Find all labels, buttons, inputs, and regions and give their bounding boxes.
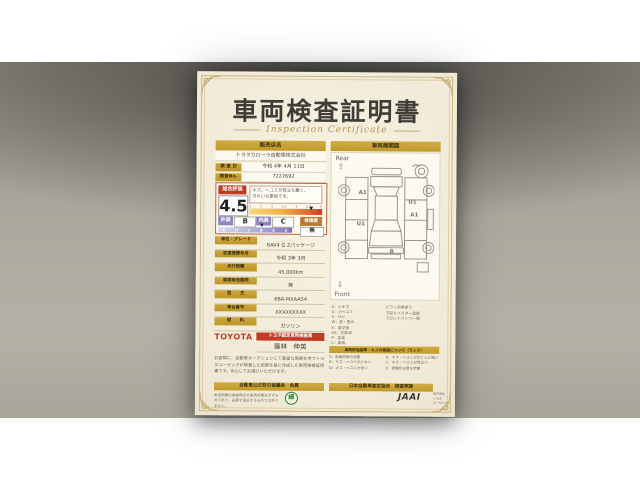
overall-rating-box: 総合評価 4.5 キズ、ヘコミが目立ち難く、 きれいな車両です。 1 2 3 3… (215, 182, 327, 235)
damage-marker: U1 (357, 221, 366, 227)
footer-note: 本証明書は検査時点の車両状態を示すものであり、品質を保証するものではありません。 (214, 393, 280, 410)
grade-tick: D (235, 228, 238, 232)
certified-inspector-badge: トヨタ認定車両検査員 (256, 333, 324, 341)
spec-label: 車検有効期限 (215, 277, 257, 285)
spec-value: 令和 3年 3月 (257, 255, 325, 262)
appraisal-institute-bar: 日本自動車査定協会 検査実施 (329, 383, 433, 392)
front-label: Front (335, 291, 350, 298)
fair-trade-council-bar: 自動車公正取引協議会 会員 (214, 382, 324, 391)
exterior-label: 外装 (218, 216, 233, 225)
subtitle-ornament (393, 130, 419, 131)
certificate-subtitle: Inspection Certificate (197, 124, 457, 136)
grade-tick: A (272, 228, 275, 232)
certificate-document: 車両検査証明書 Inspection Certificate 販売店名 トヨタカ… (195, 71, 457, 417)
spec-value: RAV4 G Zパッケージ (257, 241, 325, 248)
dealer-header: 販売店名 (216, 140, 326, 151)
spec-label: 走行距離 (215, 263, 257, 271)
subtitle-text: Inspection Certificate (266, 125, 387, 136)
jaai-logo: JAAI (398, 393, 432, 403)
grade-scale-bar: E D C B A S (218, 227, 292, 233)
front-arrow-icon: ⇩ (337, 281, 344, 289)
overall-rating-badge: 総合評価 (218, 185, 246, 194)
spec-value: ガソリン (256, 322, 324, 329)
toyota-logo: TOYOTA (214, 332, 254, 341)
spec-value: 無 (257, 282, 325, 289)
inspection-date-label: 検 査 日 (216, 163, 242, 171)
diagram-header: 車両展開図 (331, 141, 441, 152)
grade-tick: E (223, 228, 225, 232)
inspection-date-value: 令和 4年 4月 11日 (241, 162, 325, 173)
publisher-line: ユーゼック (433, 401, 451, 406)
criteria-list: S：新車同様の状態 A：キズ・ヘコミがほとんど無い B：キズ・ヘコミが少ない C… (329, 355, 439, 372)
left-column: 販売店名 トヨタカローラ自動車株式会社 検 査 日 令和 4年 4月 11日 検… (214, 140, 326, 391)
spec-label: 型 式 (215, 290, 257, 298)
overall-rating-score: 4.5 (218, 195, 248, 216)
repair-history-label: 修復歴 (300, 217, 322, 226)
grade-tick: C (248, 228, 251, 232)
disclaimer-text: お客様に、自動車オークションにて豊富な実績を持つトヨタユーゼックが検査した結果を… (214, 355, 324, 375)
diagram-legend: A：小キズ U：小ヘコミ S：サビ W：波・歪み X：要交換 XX：交換済 P：… (331, 304, 383, 345)
grade-marker-icon: ▼ (260, 225, 263, 229)
criteria-item: D：キズ・ヘコミが多い (329, 366, 383, 372)
spec-value: XXXXXXXXX (256, 310, 324, 316)
inspection-no-row: 検査No. 7227692 (215, 172, 325, 182)
spec-label: 初度登録年月 (215, 250, 257, 258)
score-marker-icon: ▼ (309, 207, 313, 212)
spec-value: 45,000km (257, 269, 325, 275)
footer-publisher-note: 株式会社 トヨタ ユーゼック (433, 392, 451, 406)
grade-tick: S (285, 228, 287, 232)
note-item: フロントバンパー傷 (385, 316, 439, 322)
inspection-no-value: 7227692 (241, 172, 325, 183)
right-column: 車両展開図 Rear ⇧ (329, 141, 441, 387)
inspection-notes: ピラー交換あり 下回りパスター塗装 フロントバンパー傷 (385, 304, 439, 321)
spec-row-fuel: 燃 料 ガソリン (214, 316, 324, 331)
car-diagram-panel: Rear ⇧ (330, 152, 441, 301)
damage-marker: B (390, 249, 394, 255)
subtitle-ornament (234, 129, 260, 130)
exterior-grade: B (234, 216, 256, 227)
damage-marker: A1 (410, 213, 418, 219)
spec-value: 6BA-MXAA54 (257, 296, 325, 302)
green-emblem-icon: 緑 (285, 392, 298, 405)
interior-label: 内装 (256, 217, 271, 226)
criteria-header: 車両評価基準・キズの程度について（ランク） (329, 346, 439, 354)
car-unfolded-diagram: A1 U1 A1 U1 B (338, 159, 435, 296)
legend-item: C：腐食 (331, 340, 383, 345)
interior-grade: C (272, 217, 294, 228)
inspector-name: 藤林 伸英 (256, 343, 324, 353)
grade-tick: B (260, 228, 263, 232)
certificate-title: 車両検査証明書 (197, 91, 457, 129)
damage-marker: U1 (408, 200, 417, 206)
inspection-date-row: 検 査 日 令和 4年 4月 11日 (216, 162, 326, 172)
photo-stage: 車両検査証明書 Inspection Certificate 販売店名 トヨタカ… (0, 0, 640, 480)
rating-comment: キズ、ヘコミが目立ち難く、 きれいな車両です。 (249, 185, 322, 204)
spec-label: 車台番号 (215, 304, 257, 312)
spec-label: 燃 料 (214, 317, 256, 325)
criteria-item: E：修理が必要な状態 (386, 366, 440, 372)
rating-comment-line2: きれいな車両です。 (252, 195, 319, 202)
damage-marker: A1 (359, 190, 367, 196)
spec-label: 車名・グレード (215, 236, 257, 244)
inspection-no-label: 検査No. (215, 173, 241, 181)
dealer-name: トヨタカローラ自動車株式会社 (216, 151, 326, 162)
